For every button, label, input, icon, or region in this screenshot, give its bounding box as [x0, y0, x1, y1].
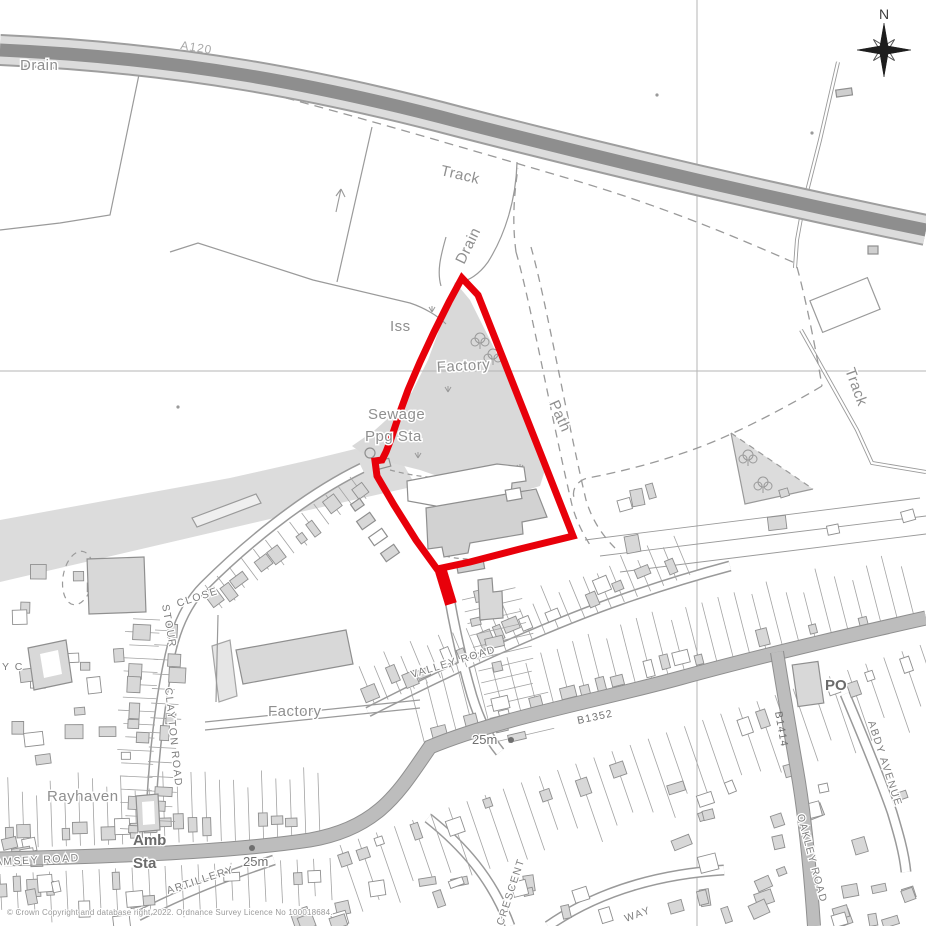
- house: [35, 754, 51, 765]
- house: [643, 659, 655, 677]
- house: [630, 488, 645, 507]
- road-crescent-casing: [428, 818, 510, 926]
- house: [696, 791, 714, 807]
- house: [827, 524, 840, 535]
- speck: [655, 93, 658, 96]
- map-canvas: Drain Track Drain Iss Factory Sewage Ppg…: [0, 0, 926, 926]
- house: [882, 915, 900, 926]
- house: [433, 890, 446, 908]
- house: [126, 891, 144, 908]
- house: [737, 717, 753, 736]
- plot-line: [881, 556, 898, 624]
- house: [338, 852, 353, 868]
- house: [624, 534, 641, 553]
- plot-line: [37, 795, 39, 847]
- plot-line: [78, 773, 80, 846]
- house: [121, 752, 130, 759]
- house: [369, 880, 386, 897]
- ambulance-station-inner: [142, 801, 155, 825]
- plot-line: [630, 745, 653, 812]
- building-courtyard-inner: [40, 650, 62, 678]
- house: [65, 725, 83, 739]
- house: [767, 515, 787, 530]
- house: [668, 899, 684, 914]
- label-amb: Amb: [133, 832, 166, 849]
- plot-line: [121, 763, 153, 765]
- house: [772, 835, 785, 850]
- house: [871, 883, 887, 893]
- plot-line: [901, 566, 915, 620]
- os-map-site-plan: Drain Track Drain Iss Factory Sewage Ppg…: [0, 0, 926, 926]
- house: [73, 571, 83, 580]
- plot-line: [834, 576, 849, 636]
- label-25m-a: 25m: [472, 732, 497, 747]
- house: [13, 876, 21, 891]
- house: [99, 727, 116, 737]
- label-sewage-1: Sewage: [368, 406, 425, 423]
- plot-line: [612, 751, 633, 812]
- house: [188, 817, 197, 832]
- house: [667, 781, 686, 795]
- label-sta: Sta: [133, 855, 157, 872]
- speck: [176, 405, 179, 408]
- house: [230, 571, 249, 588]
- building-l-shape: [478, 578, 503, 620]
- north-arrow: [857, 23, 911, 77]
- post-office-building: [792, 661, 824, 706]
- field-boundary: [337, 127, 372, 282]
- plot-line: [718, 597, 736, 666]
- house: [24, 731, 44, 747]
- house: [101, 827, 115, 840]
- speck: [810, 131, 813, 134]
- house: [617, 497, 633, 512]
- house: [129, 703, 140, 719]
- label-drain-mid: Drain: [452, 225, 484, 267]
- house: [374, 836, 384, 846]
- plot-line: [133, 619, 160, 620]
- label-track-ne: Track: [841, 366, 870, 409]
- plot-line: [702, 603, 719, 670]
- label-iss: Iss: [390, 318, 411, 335]
- drain-stream: [439, 237, 446, 286]
- label-factory-site: Factory: [436, 356, 490, 376]
- plot-line: [620, 555, 637, 596]
- label-b1352: B1352: [576, 708, 614, 727]
- house: [0, 884, 7, 897]
- path-dashed-east: [531, 247, 615, 548]
- house: [901, 509, 916, 523]
- house: [659, 654, 671, 670]
- copyright-text: © Crown Copyright and database right 202…: [7, 908, 333, 917]
- factory-building-sw: [236, 630, 353, 684]
- plot-line: [920, 645, 926, 715]
- house: [17, 824, 31, 838]
- house: [724, 780, 736, 794]
- house: [296, 532, 307, 544]
- plot-line: [703, 720, 725, 783]
- plot-line: [330, 858, 332, 900]
- label-sewage-2: Ppg Sta: [365, 428, 422, 445]
- house: [702, 809, 715, 821]
- plot-line: [121, 658, 158, 660]
- bench-mark-dot: [508, 737, 514, 743]
- road-valley-casing: [368, 566, 730, 712]
- building-west-large: [87, 557, 146, 614]
- plot-line: [276, 779, 278, 840]
- plot-line: [647, 546, 664, 586]
- plot-line: [394, 826, 413, 881]
- field-boundary: [0, 60, 142, 230]
- house: [410, 822, 423, 840]
- house: [30, 564, 46, 579]
- site-building-notch: [505, 488, 522, 501]
- plot-line: [129, 645, 158, 646]
- house: [841, 883, 858, 898]
- house: [114, 818, 129, 834]
- house: [634, 565, 651, 579]
- track-ne-line-fill: [795, 62, 838, 268]
- plot-line: [304, 767, 306, 838]
- house: [308, 870, 321, 882]
- plot-line: [539, 776, 557, 830]
- house: [37, 874, 53, 892]
- house: [868, 913, 878, 926]
- house: [128, 719, 139, 728]
- house: [721, 906, 733, 923]
- path-dashed-north: [514, 168, 518, 252]
- grass-tuft-icon: [429, 306, 435, 312]
- flow-arrow-icon: [336, 189, 345, 212]
- house: [306, 520, 321, 537]
- plot-line: [815, 569, 833, 641]
- house: [852, 837, 869, 855]
- house: [755, 628, 770, 647]
- plot-line: [248, 787, 250, 840]
- house: [419, 877, 437, 887]
- plot-line: [219, 780, 221, 841]
- plot-line: [866, 566, 882, 629]
- house: [671, 834, 692, 850]
- house: [575, 777, 591, 796]
- label-track-nw: Track: [439, 162, 481, 187]
- plot-line: [648, 739, 675, 818]
- house: [258, 813, 267, 826]
- house: [900, 656, 914, 673]
- house: [492, 661, 503, 672]
- house: [808, 624, 817, 634]
- house: [539, 788, 552, 802]
- house: [51, 881, 61, 893]
- house: [664, 558, 677, 575]
- house: [12, 610, 27, 625]
- label-rayhaven: Rayhaven: [47, 788, 119, 805]
- house: [818, 783, 829, 793]
- field-boundary: [170, 243, 446, 324]
- plot-line: [484, 683, 533, 694]
- house: [271, 816, 283, 825]
- house: [865, 670, 875, 681]
- label-factory-sw: Factory: [268, 703, 322, 720]
- label-way: WAY: [623, 904, 653, 925]
- house: [694, 654, 704, 665]
- house: [74, 707, 85, 715]
- house: [381, 544, 400, 561]
- house: [356, 847, 370, 861]
- house: [202, 818, 211, 836]
- plot-line: [734, 592, 752, 661]
- house: [385, 664, 400, 683]
- label-drain-nw: Drain: [20, 57, 58, 74]
- house: [770, 813, 784, 828]
- house: [113, 648, 124, 662]
- house: [80, 662, 89, 670]
- plot-line: [117, 750, 153, 752]
- plot-line: [576, 764, 603, 842]
- house: [293, 873, 302, 885]
- house: [448, 877, 464, 889]
- house: [112, 872, 120, 889]
- plot-line: [290, 780, 292, 839]
- outline-building-ne: [810, 278, 880, 333]
- plot-line: [318, 773, 320, 838]
- plot-line: [558, 770, 578, 828]
- house: [672, 649, 691, 665]
- house: [169, 667, 186, 683]
- house: [776, 867, 787, 877]
- house: [645, 483, 656, 499]
- dashed-boundary-track: [797, 267, 822, 386]
- house: [609, 761, 626, 778]
- label-north: N: [879, 6, 889, 22]
- plot-line: [261, 771, 263, 840]
- plot-line: [233, 780, 235, 841]
- house: [133, 624, 151, 640]
- plot-line: [503, 789, 527, 860]
- label-25m-b: 25m: [243, 854, 268, 869]
- house: [756, 709, 771, 729]
- house: [518, 616, 532, 632]
- house: [12, 721, 24, 734]
- compass-major-points: [857, 23, 911, 77]
- label-po: PO: [825, 677, 847, 694]
- house: [168, 654, 181, 667]
- small-building-ne: [836, 88, 853, 97]
- house: [612, 580, 624, 592]
- house: [361, 684, 380, 703]
- house: [285, 818, 297, 827]
- house: [87, 676, 102, 693]
- plot-line: [411, 688, 425, 745]
- house: [483, 797, 493, 808]
- label-partial-close: Y C: [2, 661, 24, 673]
- house: [369, 528, 388, 545]
- house: [136, 732, 149, 743]
- small-building-ne: [868, 246, 878, 254]
- house: [357, 512, 376, 529]
- plot-line: [281, 860, 283, 903]
- house: [62, 828, 70, 840]
- bench-mark-dot: [249, 845, 255, 851]
- house: [351, 498, 365, 511]
- plot-line: [481, 671, 532, 683]
- plot-line: [123, 697, 156, 699]
- label-stour: STOUR: [159, 603, 178, 648]
- site-boundary-stub: [441, 571, 451, 604]
- house: [72, 822, 87, 834]
- label-path: Path: [545, 398, 574, 435]
- house: [598, 907, 613, 924]
- house: [127, 676, 141, 692]
